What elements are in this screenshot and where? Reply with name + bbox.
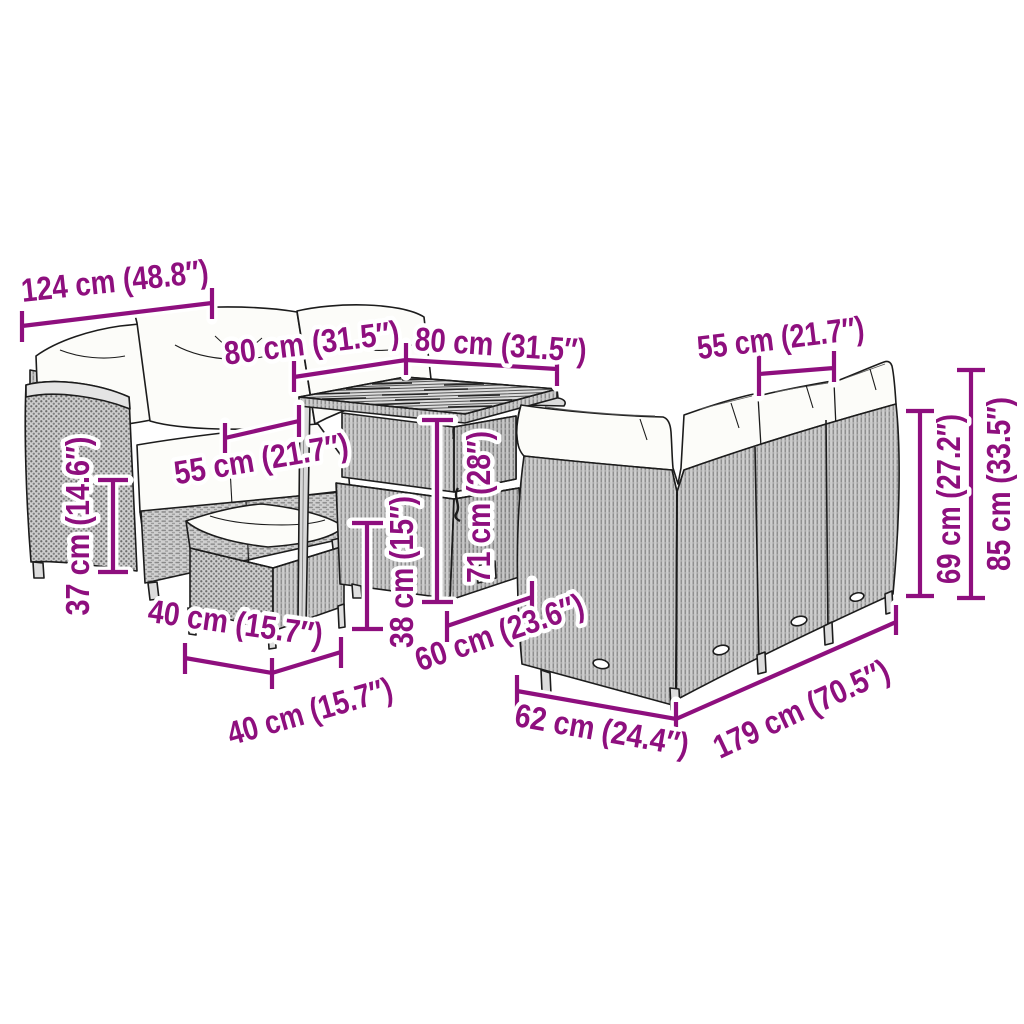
svg-text:37 cm (14.6″): 37 cm (14.6″) xyxy=(59,437,96,616)
svg-text:69 cm (27.2″): 69 cm (27.2″) xyxy=(930,414,967,584)
svg-text:38 cm (15″): 38 cm (15″) xyxy=(383,496,420,648)
svg-text:71 cm (28″): 71 cm (28″) xyxy=(460,431,497,583)
svg-text:85 cm (33.5″): 85 cm (33.5″) xyxy=(980,397,1017,571)
